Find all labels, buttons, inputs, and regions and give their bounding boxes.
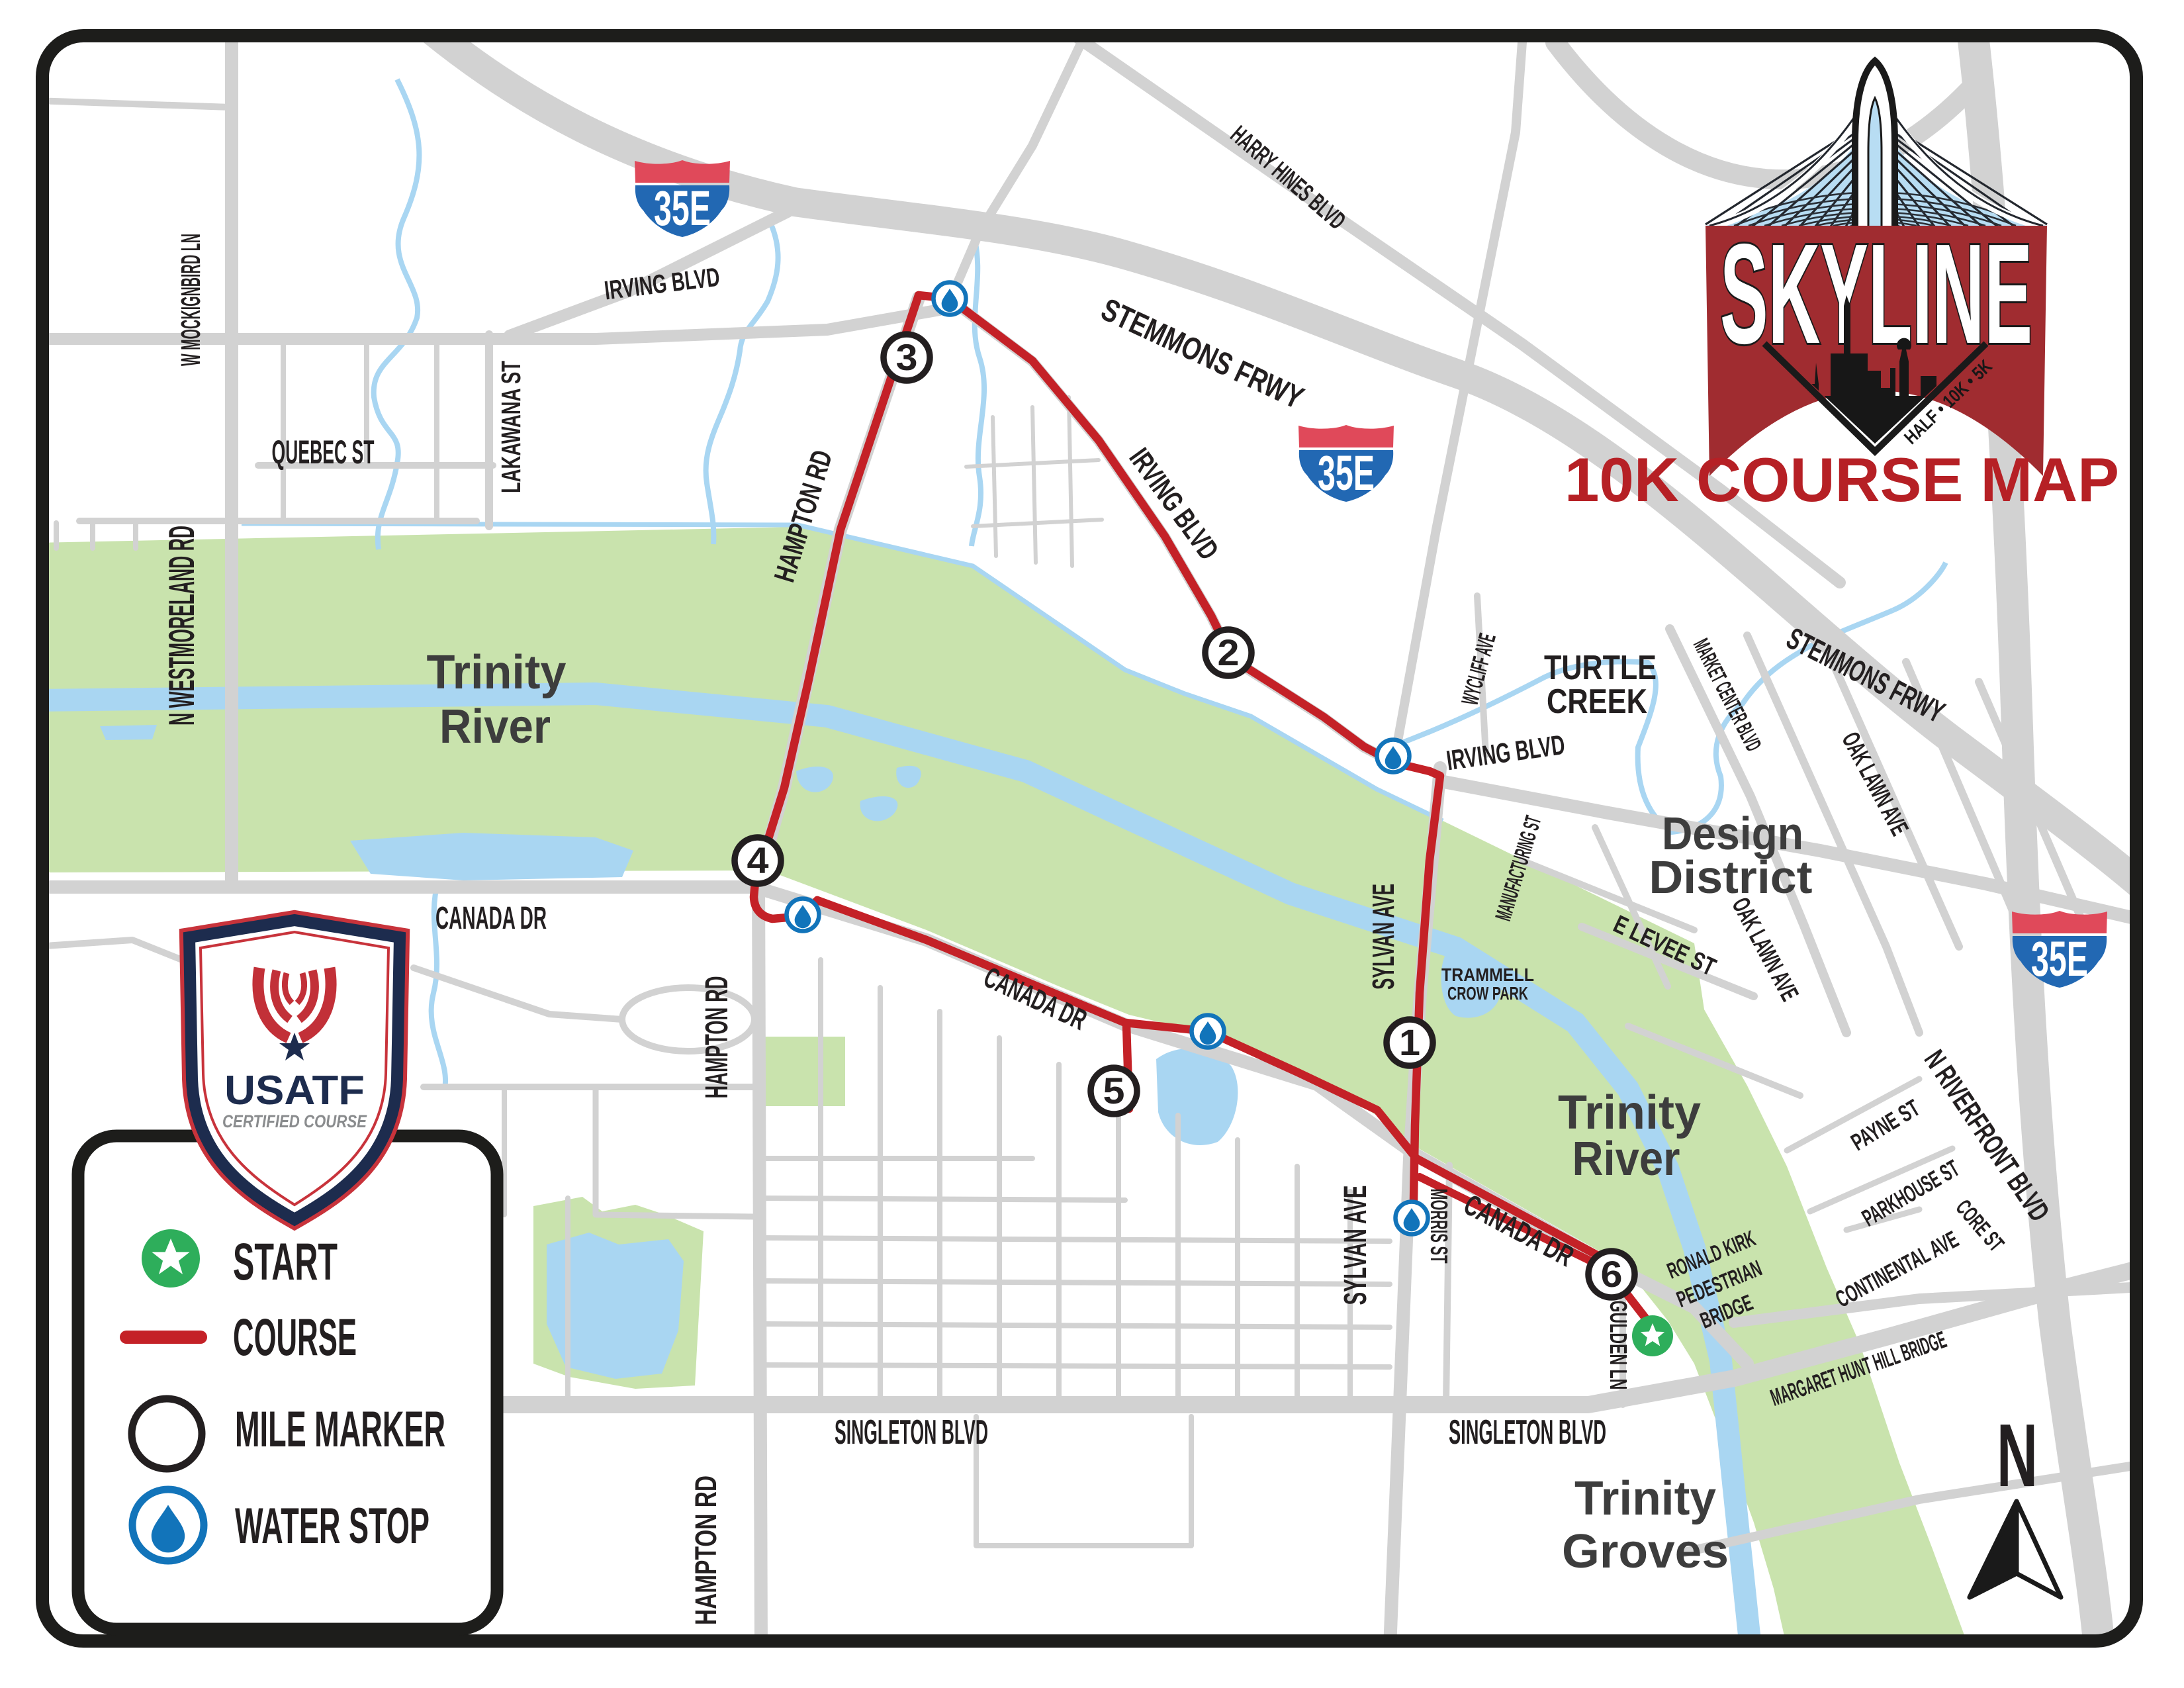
svg-text:SINGLETON BLVD: SINGLETON BLVD — [835, 1413, 988, 1452]
svg-text:CANADA DR: CANADA DR — [435, 901, 547, 936]
svg-text:USATF: USATF — [224, 1068, 365, 1113]
svg-text:1: 1 — [1399, 1021, 1420, 1063]
svg-text:SKYLINE: SKYLINE — [1720, 214, 2032, 373]
svg-text:MORRIS ST: MORRIS ST — [1426, 1189, 1453, 1264]
svg-text:CREEK: CREEK — [1547, 682, 1647, 721]
svg-text:Trinity: Trinity — [1558, 1086, 1701, 1139]
svg-text:River: River — [1572, 1133, 1680, 1186]
svg-text:CROW PARK: CROW PARK — [1447, 983, 1528, 1004]
svg-text:CERTIFIED COURSE: CERTIFIED COURSE — [222, 1111, 367, 1131]
svg-text:Trinity: Trinity — [1574, 1472, 1716, 1525]
svg-text:LAKAWANA ST: LAKAWANA ST — [496, 361, 526, 493]
svg-text:Trinity: Trinity — [427, 646, 567, 699]
svg-text:N: N — [1997, 1405, 2038, 1505]
svg-text:TRAMMELL: TRAMMELL — [1441, 964, 1534, 985]
svg-text:WATER STOP: WATER STOP — [235, 1498, 430, 1554]
svg-text:TURTLE: TURTLE — [1544, 649, 1657, 687]
svg-text:QUEBEC ST: QUEBEC ST — [272, 434, 375, 471]
svg-text:SINGLETON BLVD: SINGLETON BLVD — [1449, 1413, 1606, 1452]
svg-text:10K COURSE MAP: 10K COURSE MAP — [1565, 445, 2119, 514]
svg-text:6: 6 — [1601, 1253, 1623, 1295]
svg-text:5: 5 — [1103, 1070, 1125, 1111]
svg-text:3: 3 — [896, 336, 918, 378]
svg-text:District: District — [1649, 851, 1813, 903]
svg-text:GULDEN LN: GULDEN LN — [1605, 1301, 1632, 1390]
svg-text:4: 4 — [747, 839, 769, 881]
svg-text:COURSE: COURSE — [233, 1307, 357, 1366]
svg-text:2: 2 — [1218, 632, 1240, 673]
svg-text:MILE MARKER: MILE MARKER — [235, 1401, 445, 1458]
svg-text:HAMPTON RD: HAMPTON RD — [689, 1476, 723, 1625]
svg-text:HAMPTON RD: HAMPTON RD — [700, 976, 735, 1099]
svg-text:SYLVAN AVE: SYLVAN AVE — [1366, 884, 1400, 990]
svg-text:River: River — [439, 700, 551, 753]
svg-text:W MOCKIGNBIRD LN: W MOCKIGNBIRD LN — [175, 234, 206, 366]
svg-text:Groves: Groves — [1562, 1525, 1729, 1578]
svg-text:SYLVAN AVE: SYLVAN AVE — [1338, 1186, 1373, 1305]
svg-text:N WESTMORELAND RD: N WESTMORELAND RD — [161, 526, 202, 726]
svg-text:START: START — [233, 1232, 338, 1291]
